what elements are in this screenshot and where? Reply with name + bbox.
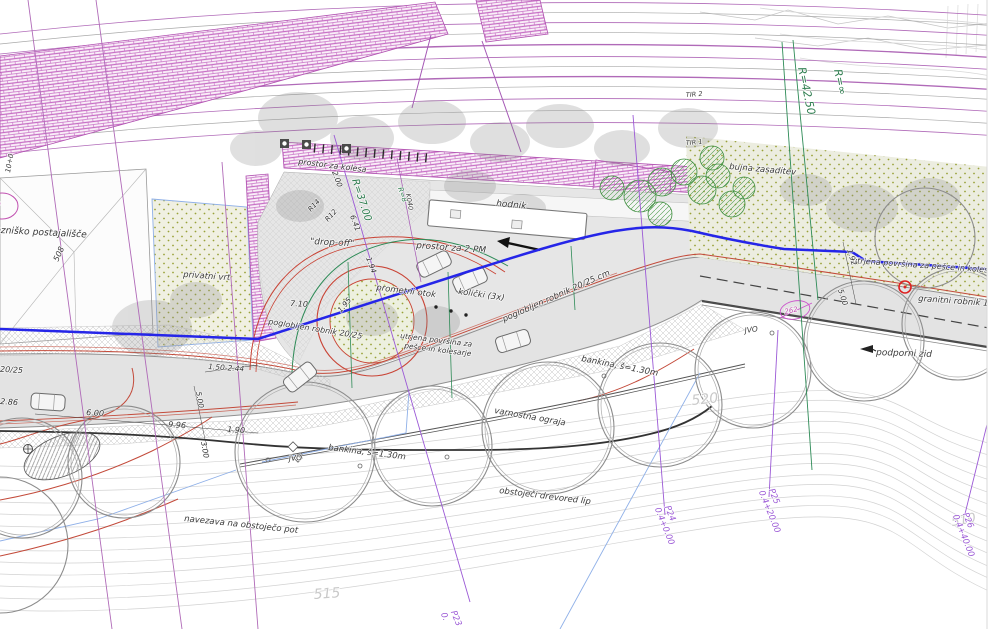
- dimension-label: 9.96: [168, 420, 186, 430]
- paper-edge: [987, 0, 1000, 629]
- contour-label: 515: [313, 585, 341, 603]
- car-symbol: [30, 393, 65, 411]
- site-plan-drawing: železniško postajališče 508 26 privatni …: [0, 0, 1000, 629]
- retaining-wall-label: podporni zid: [875, 348, 932, 360]
- dimension-label: 2.86: [0, 397, 18, 407]
- dimension-label: 6.00: [86, 408, 104, 418]
- dimension-label: 7.10: [290, 299, 308, 309]
- track-label-tir1: TIR 1: [686, 138, 703, 147]
- site-plan-canvas: železniško postajališče 508 26 privatni …: [0, 0, 1000, 629]
- jvo-label: JVO: [286, 453, 302, 463]
- contour-label: 520: [691, 390, 719, 409]
- track-label-tir2: TIR 2: [686, 90, 703, 99]
- dimension-label: 1.90: [227, 425, 245, 435]
